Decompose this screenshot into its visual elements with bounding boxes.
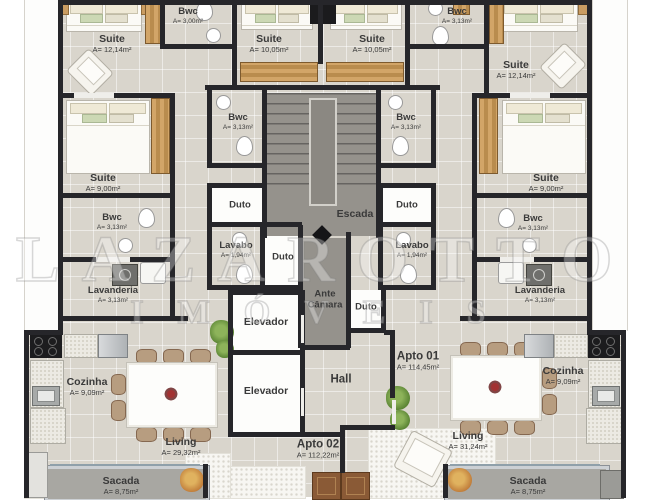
room-label-bwc-outer-r: BwcA= 3,13m² <box>518 214 548 232</box>
entry-door <box>312 472 341 500</box>
exterior-cutout-right <box>592 0 628 331</box>
wall <box>228 290 305 295</box>
wall <box>232 0 237 90</box>
room-label-ante-camara: AnteCâmara <box>308 289 343 310</box>
potted-plant <box>180 468 204 492</box>
wall <box>207 183 265 188</box>
sink <box>216 95 231 110</box>
wall <box>24 330 63 335</box>
table-centerpiece <box>487 379 503 395</box>
wall <box>207 183 212 290</box>
room-label-hall: Hall <box>330 374 351 387</box>
stair-stringer <box>309 98 337 206</box>
wall <box>228 290 233 437</box>
floor-plan: SuiteA= 12,14m² BwcA= 3,00m² SuiteA= 10,… <box>0 0 650 500</box>
room-label-bwc-inner-r: BwcA= 3,13m² <box>391 113 421 131</box>
door-opening <box>392 400 396 424</box>
wall <box>207 222 265 227</box>
wall <box>58 316 188 321</box>
room-label-cozinha-r: CozinhaA= 9,09m² <box>543 366 584 386</box>
door-opening <box>301 388 304 416</box>
kitchen-counter <box>64 334 98 358</box>
toilet <box>400 264 417 284</box>
toilet <box>432 26 449 46</box>
room-label-cozinha-l: CozinhaA= 9,09m² <box>67 377 108 397</box>
wall <box>24 330 29 498</box>
door-opening <box>500 257 534 262</box>
room-label-sacada-r: SacadaA= 8,75m² <box>510 476 547 496</box>
wall <box>58 0 592 5</box>
room-label-escada: Escada <box>337 209 374 221</box>
kitchen-counter <box>30 408 66 444</box>
wall <box>384 330 395 335</box>
room-label-elevador-1: Elevador <box>244 317 288 329</box>
room-label-lavanderia-r: LavanderiaA= 3,13m² <box>515 286 565 304</box>
wall <box>170 93 175 321</box>
wall <box>340 425 395 430</box>
room-label-bwc-outer-l: BwcA= 3,13m² <box>97 213 127 231</box>
wall <box>443 464 448 498</box>
wall <box>207 163 267 168</box>
door-opening <box>96 257 130 262</box>
wall <box>228 432 343 437</box>
wall <box>58 0 63 332</box>
room-label-suite-tl: SuiteA= 12,14m² <box>93 34 132 54</box>
wall <box>300 345 350 350</box>
wall <box>390 330 395 398</box>
sink <box>522 238 537 253</box>
bed-suite-mid-left <box>66 100 150 174</box>
room-label-lavabo-l: LavaboA= 1,94m² <box>219 241 252 259</box>
sink <box>118 238 133 253</box>
wall <box>378 183 436 188</box>
wardrobe <box>326 62 404 82</box>
wall <box>205 85 440 90</box>
room-label-duto-cr: Duto <box>355 303 377 314</box>
room-label-bwc-tl: BwcA= 3,00m² <box>173 7 203 25</box>
wall <box>260 222 265 290</box>
wall <box>460 316 590 321</box>
room-label-duto-cl: Duto <box>272 253 294 264</box>
door-opening <box>74 93 114 98</box>
wall <box>262 222 302 227</box>
sliding-door-right <box>450 464 600 466</box>
bed-suite-mid-right <box>502 100 586 174</box>
table-centerpiece <box>163 386 179 402</box>
wall <box>207 88 212 168</box>
toilet <box>236 264 253 284</box>
room-label-duto-r: Duto <box>396 201 418 212</box>
wall <box>621 330 626 498</box>
rug <box>228 466 306 499</box>
refrigerator <box>98 334 128 358</box>
toilet <box>498 208 515 228</box>
room-label-bwc-inner-l: BwcA= 3,13m² <box>223 113 253 131</box>
washing-machine <box>526 264 552 286</box>
room-label-suite-tr: SuiteA= 12,14m² <box>497 60 536 80</box>
wall <box>378 222 436 227</box>
toilet <box>236 136 253 156</box>
stove <box>588 334 620 358</box>
room-label-suite-tcr: SuiteA= 10,05m² <box>353 34 392 54</box>
stove <box>30 334 62 358</box>
wardrobe <box>479 98 498 174</box>
wardrobe <box>240 62 318 82</box>
wall <box>378 285 436 290</box>
room-label-suite-tcl: SuiteA= 10,05m² <box>250 34 289 54</box>
refrigerator <box>524 334 554 358</box>
kitchen-counter <box>586 408 622 444</box>
sliding-door-left <box>50 464 200 466</box>
sink <box>388 95 403 110</box>
exterior-cutout-left <box>24 0 60 331</box>
toilet <box>392 136 409 156</box>
room-label-suite-mr: SuiteA= 9,00m² <box>529 173 564 193</box>
room-label-duto-l: Duto <box>229 201 251 212</box>
wall <box>203 464 208 498</box>
room-label-sacada-l: SacadaA= 8,75m² <box>103 476 140 496</box>
kitchen-sink <box>592 386 620 406</box>
laundry-tub <box>140 262 166 284</box>
kitchen-counter <box>554 334 588 358</box>
wall <box>587 0 592 332</box>
potted-plant <box>448 468 472 492</box>
wall <box>472 93 477 321</box>
laundry-tub <box>498 262 524 284</box>
room-label-lavabo-r: LavaboA= 1,94m² <box>395 241 428 259</box>
toilet <box>138 208 155 228</box>
room-label-apto-01: Apto 01A= 114,45m² <box>397 350 440 371</box>
wall <box>378 183 383 290</box>
room-label-suite-ml: SuiteA= 9,00m² <box>86 173 121 193</box>
room-label-bwc-tr: BwcA= 3,13m² <box>442 7 472 25</box>
room-label-elevador-2: Elevador <box>244 386 288 398</box>
utility-box <box>26 452 48 498</box>
entry-door <box>341 472 370 500</box>
sink <box>206 28 221 43</box>
kitchen-sink <box>32 386 60 406</box>
wall <box>472 193 590 198</box>
wardrobe <box>489 0 504 44</box>
room-label-living-r: LivingA= 31,24m² <box>449 431 488 451</box>
wall <box>431 88 436 168</box>
wall <box>340 425 345 473</box>
wall <box>262 88 267 238</box>
room-label-living-l: LivingA= 29,32m² <box>162 437 201 457</box>
door-opening <box>510 93 550 98</box>
wall <box>346 328 384 333</box>
wall <box>160 0 165 48</box>
wall <box>160 44 237 49</box>
room-label-apto-02: Apto 02A= 112,22m² <box>297 438 340 459</box>
wall <box>431 183 436 290</box>
wall <box>318 0 323 64</box>
wall <box>228 350 305 355</box>
washing-machine <box>112 264 138 286</box>
wall <box>381 285 386 333</box>
room-label-lavanderia-l: LavanderiaA= 3,13m² <box>88 286 138 304</box>
wall <box>410 44 489 49</box>
wardrobe <box>151 98 170 174</box>
wall <box>58 193 175 198</box>
wall <box>376 163 436 168</box>
door-opening <box>301 315 304 343</box>
